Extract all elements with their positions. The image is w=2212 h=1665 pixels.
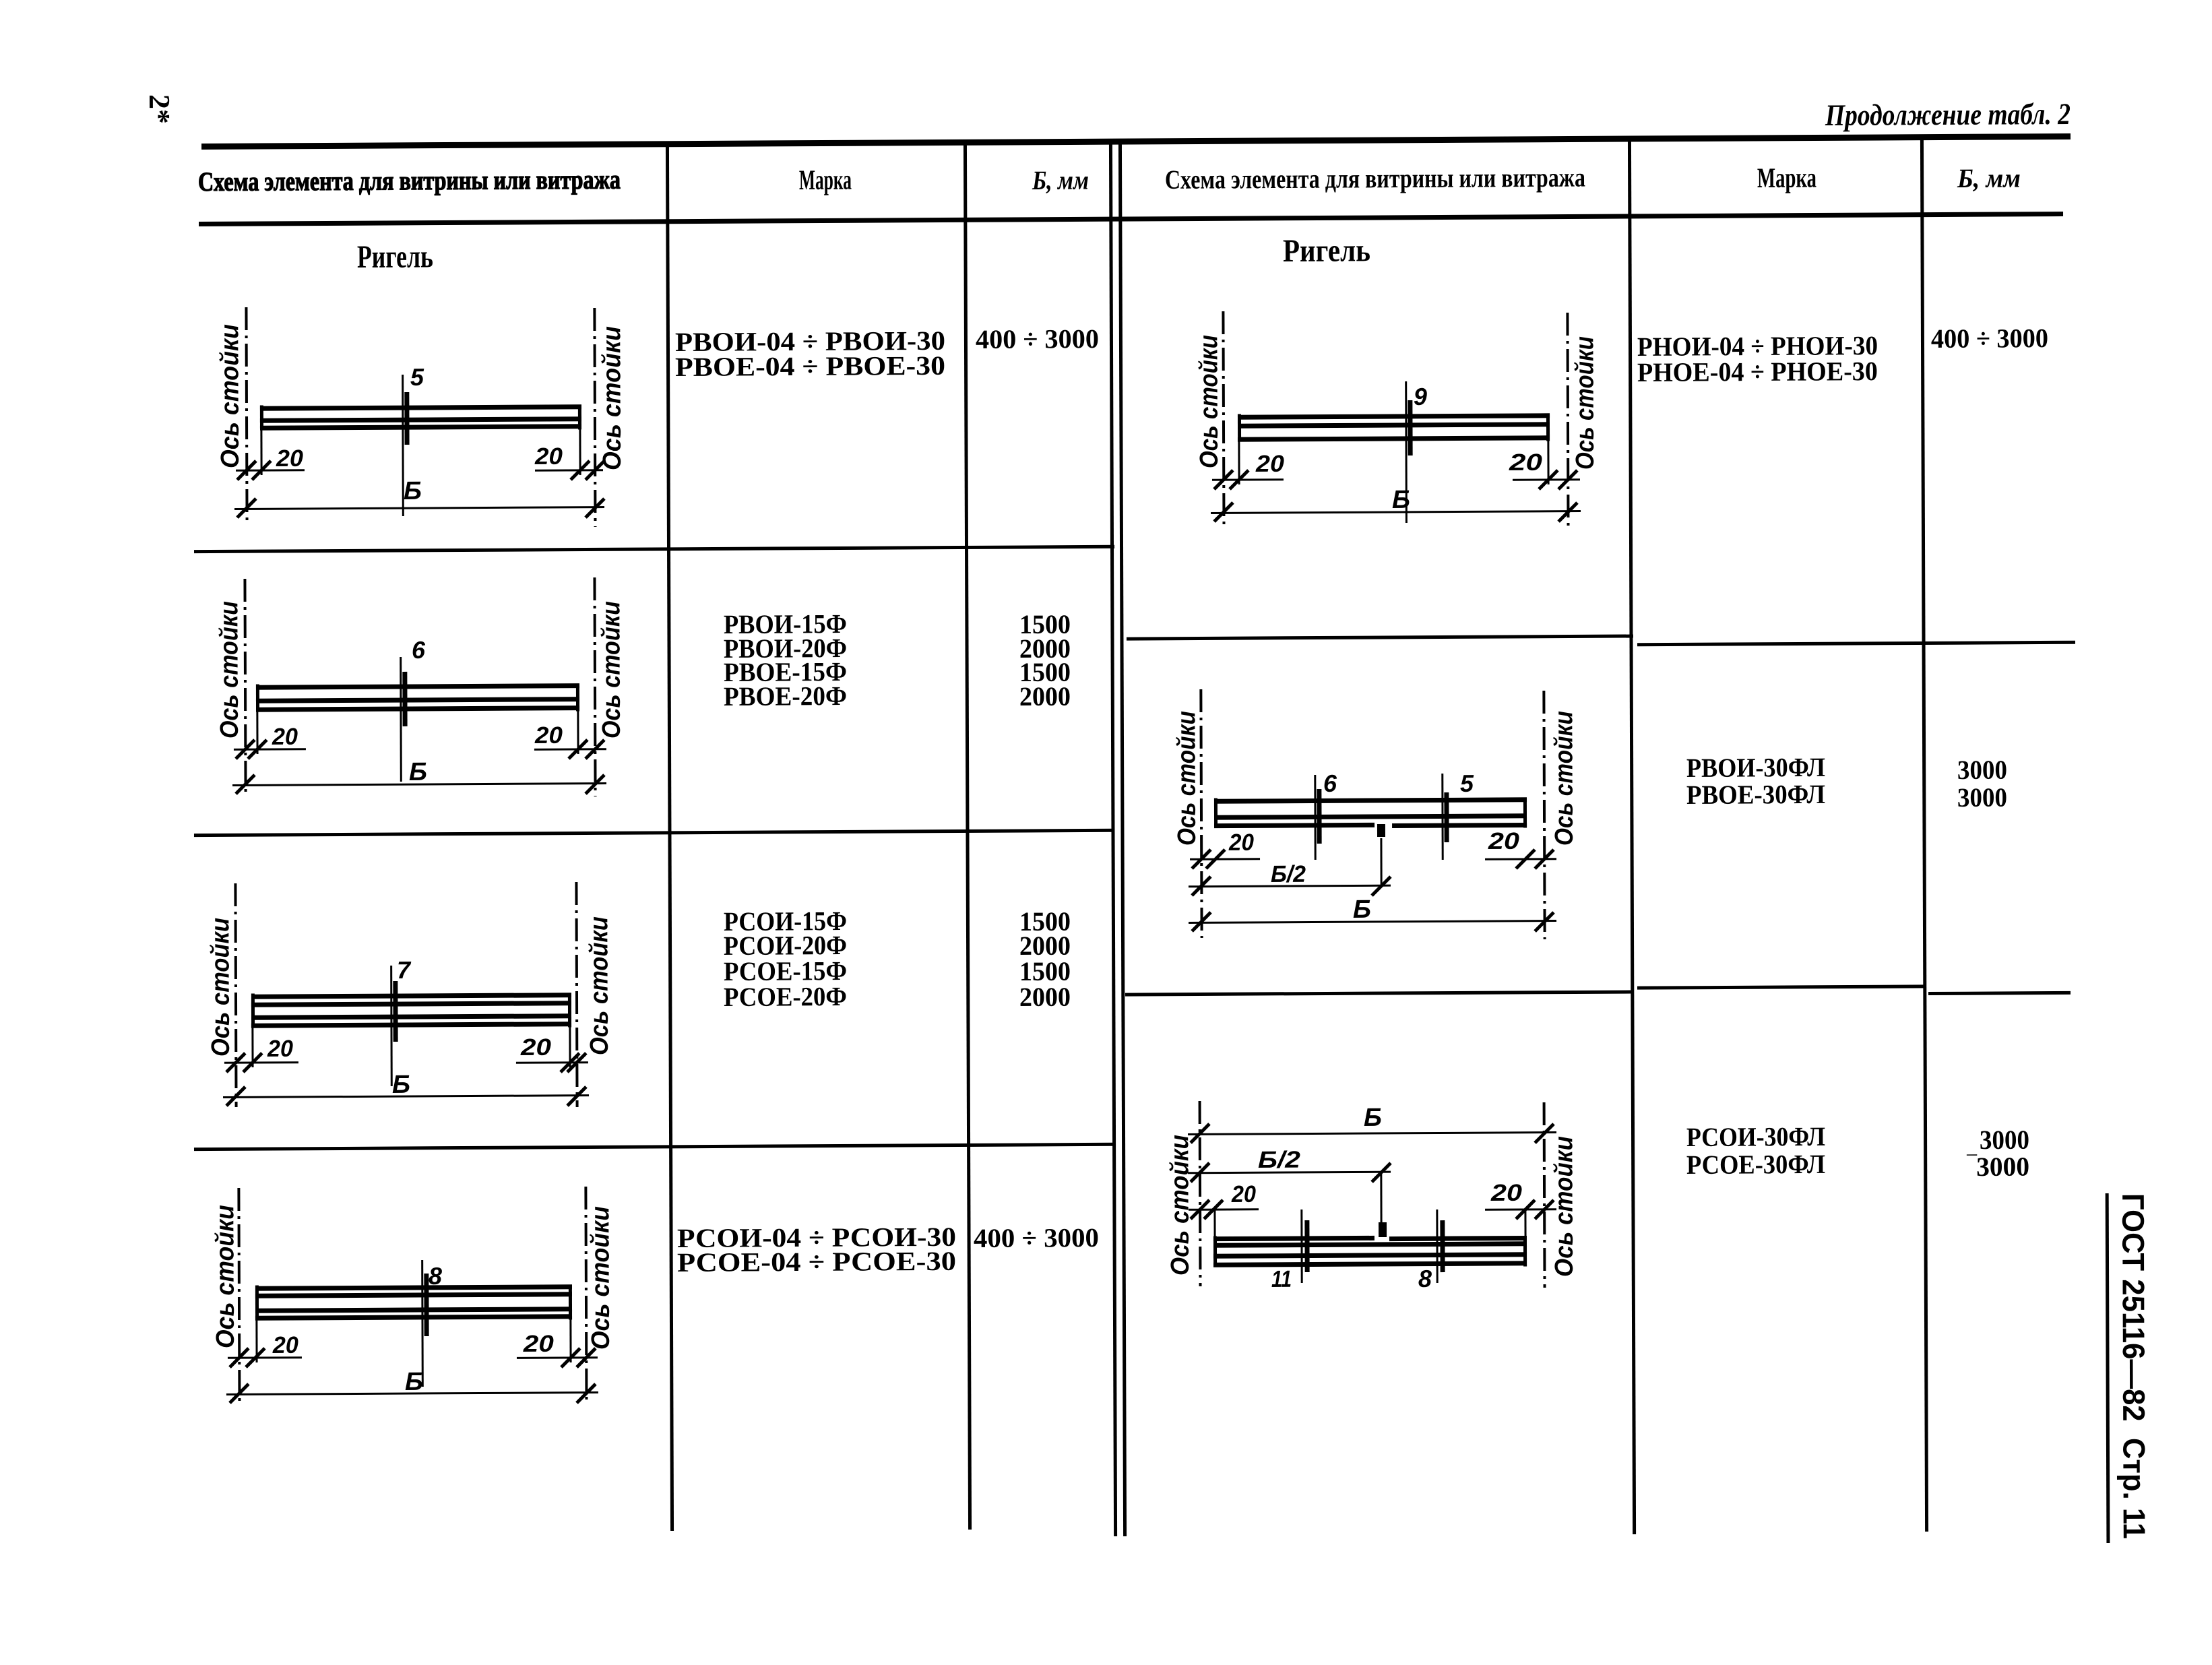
- svg-text:Ригель: Ригель: [357, 239, 433, 275]
- svg-text:Марка: Марка: [799, 165, 852, 196]
- svg-text:20: 20: [1228, 829, 1255, 856]
- svg-text:Ось стойки: Ось стойки: [211, 1205, 240, 1348]
- svg-text:РСОИ-30ФЛ: РСОИ-30ФЛ: [1686, 1121, 1825, 1152]
- svg-text:3000: 3000: [1957, 782, 2007, 813]
- svg-text:20: 20: [272, 724, 298, 750]
- svg-text:Ось стойки: Ось стойки: [585, 916, 614, 1055]
- svg-text:РВОЕ-30ФЛ: РВОЕ-30ФЛ: [1686, 779, 1825, 810]
- svg-text:РСОЕ-20Ф: РСОЕ-20Ф: [724, 981, 847, 1012]
- svg-text:5: 5: [410, 363, 424, 391]
- svg-text:Схема элемента для витрины или: Схема элемента для витрины или витража: [198, 164, 621, 197]
- svg-text:20: 20: [1488, 828, 1520, 854]
- svg-text:20: 20: [1255, 451, 1285, 477]
- svg-text:Продолжение табл. 2: Продолжение табл. 2: [1825, 97, 2071, 132]
- svg-text:Ось стойки: Ось стойки: [586, 1206, 615, 1350]
- svg-text:20: 20: [1231, 1181, 1257, 1207]
- svg-text:20: 20: [534, 443, 563, 470]
- svg-text:20: 20: [520, 1034, 552, 1061]
- svg-text:3000: 3000: [1957, 755, 2007, 785]
- svg-text:РВОЕ-04 ÷ РВОЕ-30: РВОЕ-04 ÷ РВОЕ-30: [675, 350, 945, 382]
- svg-text:Б: Б: [1353, 896, 1371, 924]
- svg-text:Б: Б: [409, 758, 427, 786]
- svg-text:Ось стойки: Ось стойки: [1571, 336, 1600, 470]
- svg-text:РНОЕ-04 ÷ РНОЕ-30: РНОЕ-04 ÷ РНОЕ-30: [1637, 356, 1878, 387]
- svg-text:20: 20: [1490, 1180, 1523, 1206]
- svg-text:20: 20: [276, 445, 304, 472]
- svg-text:5: 5: [1460, 769, 1474, 797]
- svg-text:20: 20: [267, 1036, 294, 1062]
- svg-text:Ось стойки: Ось стойки: [1172, 711, 1201, 846]
- svg-text:‾3000: ‾3000: [1966, 1152, 2029, 1183]
- svg-text:6: 6: [1323, 769, 1337, 797]
- svg-text:2*: 2*: [143, 94, 176, 124]
- svg-text:Ось стойки: Ось стойки: [1166, 1135, 1195, 1276]
- svg-text:20: 20: [523, 1331, 555, 1357]
- svg-text:Б, мм: Б, мм: [1032, 165, 1089, 195]
- svg-text:Ось стойки: Ось стойки: [216, 324, 245, 468]
- svg-text:Ригель: Ригель: [1283, 232, 1370, 269]
- svg-text:Б: Б: [392, 1071, 410, 1099]
- svg-text:2000: 2000: [1019, 681, 1071, 712]
- svg-text:РВОЕ-20Ф: РВОЕ-20Ф: [724, 681, 847, 712]
- svg-text:3000: 3000: [1980, 1125, 2029, 1155]
- svg-text:Б: Б: [1364, 1104, 1382, 1132]
- svg-text:8: 8: [429, 1262, 442, 1290]
- svg-text:Ось стойки: Ось стойки: [1550, 1136, 1579, 1277]
- svg-text:8: 8: [1418, 1265, 1432, 1292]
- svg-text:9: 9: [1414, 383, 1427, 410]
- svg-text:Б/2: Б/2: [1271, 861, 1306, 887]
- svg-text:Б/2: Б/2: [1258, 1147, 1301, 1173]
- svg-text:Схема элемента для витрины или: Схема элемента для витрины или витража: [1165, 162, 1585, 195]
- svg-text:Ось стойки: Ось стойки: [1195, 335, 1224, 468]
- svg-text:Б, мм: Б, мм: [1957, 162, 2021, 193]
- svg-text:400 ÷ 3000: 400 ÷ 3000: [1931, 323, 2048, 354]
- svg-text:20: 20: [272, 1332, 299, 1358]
- svg-text:20: 20: [1509, 449, 1543, 476]
- svg-text:400 ÷ 3000: 400 ÷ 3000: [974, 1222, 1099, 1253]
- svg-text:7: 7: [397, 956, 412, 984]
- svg-text:20: 20: [534, 722, 563, 749]
- svg-text:11: 11: [1271, 1266, 1292, 1292]
- svg-text:Ось стойки: Ось стойки: [598, 326, 627, 470]
- svg-text:400 ÷ 3000: 400 ÷ 3000: [976, 323, 1099, 354]
- svg-text:Ось стойки: Ось стойки: [597, 601, 626, 739]
- svg-text:ГОСТ 25116—82 Стр. 11: ГОСТ 25116—82 Стр. 11: [2116, 1193, 2152, 1539]
- svg-text:Б: Б: [404, 477, 422, 505]
- svg-text:Ось стойки: Ось стойки: [215, 601, 244, 739]
- svg-text:Марка: Марка: [1757, 163, 1816, 194]
- svg-text:2000: 2000: [1019, 982, 1071, 1012]
- svg-text:6: 6: [412, 636, 426, 664]
- svg-text:Ось стойки: Ось стойки: [206, 918, 235, 1057]
- svg-text:Б: Б: [405, 1368, 423, 1396]
- svg-text:РСОЕ-04 ÷ РСОЕ-30: РСОЕ-04 ÷ РСОЕ-30: [677, 1246, 956, 1278]
- svg-text:Б: Б: [1392, 486, 1410, 514]
- svg-text:Ось стойки: Ось стойки: [1550, 711, 1579, 846]
- svg-text:РСОЕ-30ФЛ: РСОЕ-30ФЛ: [1686, 1149, 1825, 1180]
